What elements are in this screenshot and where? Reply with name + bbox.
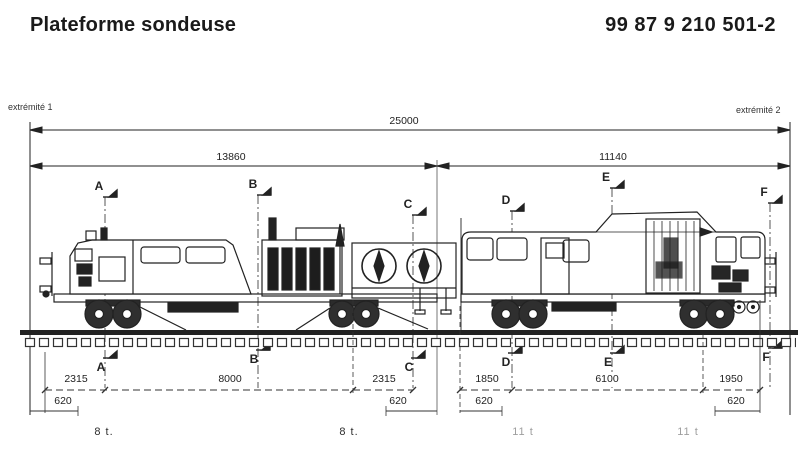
endpoint-label-1: extrémité 1: [8, 102, 53, 112]
axle-load-1: 8 t.: [92, 426, 115, 438]
dim-offset-620-3: 620: [473, 396, 495, 408]
section-marker-bottom-c: C: [404, 361, 415, 374]
section-marker-top-f: F: [759, 186, 768, 199]
rail-track: [20, 330, 798, 348]
axle-load-4: 11 t: [675, 426, 701, 438]
section-marker-bottom-f: F: [761, 351, 770, 364]
middle-equipment: [262, 218, 461, 333]
page-title: Plateforme sondeuse: [30, 14, 236, 37]
section-marker-top-b: B: [248, 178, 259, 191]
section-marker-top-c: C: [403, 198, 414, 211]
technical-drawing: [0, 0, 800, 454]
dim-rear-section: 11140: [597, 152, 629, 164]
dim-span-1950: 1950: [717, 374, 744, 386]
dim-front-section: 13860: [214, 152, 247, 164]
dim-span-6100: 6100: [593, 374, 620, 386]
section-marker-bottom-e: E: [603, 356, 613, 369]
header: Plateforme sondeuse 99 87 9 210 501-2: [0, 0, 800, 46]
dim-span-2315-right: 2315: [370, 374, 397, 386]
dim-offset-620-2: 620: [387, 396, 409, 408]
drawing-page: Plateforme sondeuse 99 87 9 210 501-2 ex…: [0, 0, 800, 454]
endpoint-label-2: extrémité 2: [736, 105, 781, 115]
axle-load-3: 11 t: [510, 426, 536, 438]
dim-offset-620-1: 620: [52, 396, 74, 408]
dim-offset-620-4: 620: [725, 396, 747, 408]
dim-span-2315-left: 2315: [62, 374, 89, 386]
section-marker-top-d: D: [501, 194, 512, 207]
right-vehicle: [461, 212, 776, 328]
axle-load-2: 8 t.: [337, 426, 360, 438]
dim-overall-length: 25000: [387, 116, 420, 128]
dim-span-8000: 8000: [216, 374, 243, 386]
vehicle-registration-number: 99 87 9 210 501-2: [605, 14, 776, 37]
dim-span-1850: 1850: [473, 374, 500, 386]
section-marker-bottom-b: B: [249, 353, 260, 366]
section-marker-top-e: E: [601, 171, 611, 184]
section-marker-bottom-d: D: [501, 356, 512, 369]
section-marker-top-a: A: [94, 180, 105, 193]
section-marker-bottom-a: A: [96, 361, 107, 374]
